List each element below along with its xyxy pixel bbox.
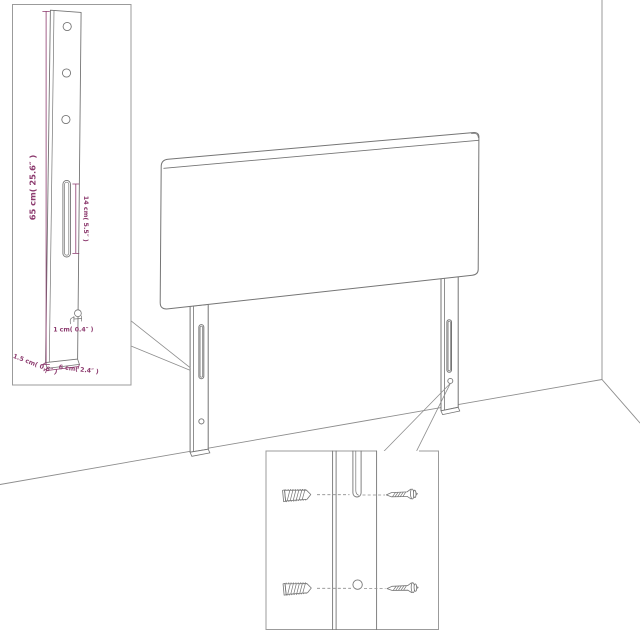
inset-leg-slot — [63, 180, 71, 257]
leg-height-label: 65 cm( 25.6″ ) — [28, 155, 38, 221]
callout-lines — [131, 321, 450, 451]
inset-leg-hole-3 — [62, 115, 70, 123]
left-leg-slot — [199, 325, 204, 379]
leader-hole-to-screw-inset-2 — [417, 383, 451, 450]
inset-leg-hole-1 — [63, 22, 71, 30]
inset-round-hole — [353, 580, 362, 589]
headboard — [160, 133, 479, 457]
inset-leg-hole-2 — [62, 69, 70, 77]
left-leg-hole — [199, 419, 204, 424]
inset-leg-small-hole — [75, 310, 82, 317]
screw-detail-inset — [266, 451, 439, 630]
leader-hole-to-screw-inset-1 — [384, 383, 450, 451]
assembly-diagram-canvas: 65 cm( 25.6″ ) 14 cm( 5.5″ ) 1 cm( 0.4″ … — [0, 0, 640, 640]
leg-slot-label: 14 cm( 5.5″ ) — [82, 196, 90, 242]
leg-detail-inset: 65 cm( 25.6″ ) 14 cm( 5.5″ ) 1 cm( 0.4″ … — [12, 5, 131, 386]
leader-inset-to-left-leg-2 — [131, 346, 190, 370]
headboard-right-leg — [441, 277, 460, 415]
headboard-assembly-diagram: 65 cm( 25.6″ ) 14 cm( 5.5″ ) 1 cm( 0.4″ … — [0, 0, 640, 640]
leg-hole-label: 1 cm( 0.4″ ) — [53, 327, 93, 334]
headboard-panel — [160, 133, 479, 309]
right-leg-hole — [448, 378, 453, 383]
floor-line-right — [602, 380, 640, 424]
leader-inset-to-left-leg-1 — [131, 321, 190, 368]
headboard-left-leg — [190, 304, 210, 456]
right-leg-slot — [447, 320, 452, 373]
